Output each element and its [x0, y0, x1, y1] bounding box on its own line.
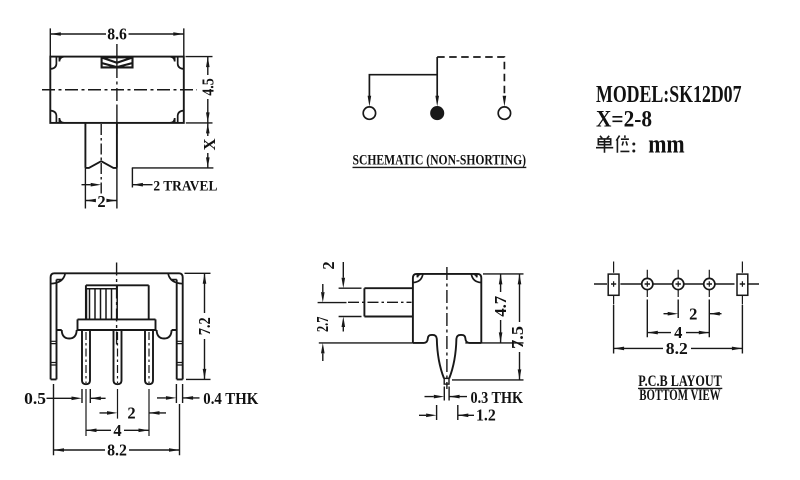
svg-text:2: 2 [319, 261, 338, 269]
svg-text:0.5: 0.5 [24, 389, 46, 408]
svg-text:8.6: 8.6 [107, 25, 127, 44]
svg-text:2: 2 [97, 192, 105, 211]
svg-text:BOTTOM VIEW: BOTTOM VIEW [639, 387, 720, 404]
svg-text:0.3 THK: 0.3 THK [471, 388, 524, 407]
svg-text:SCHEMATIC (NON-SHORTING): SCHEMATIC (NON-SHORTING) [353, 153, 527, 169]
svg-text:8.2: 8.2 [107, 441, 127, 460]
svg-text:8.2: 8.2 [666, 339, 688, 358]
svg-text:2: 2 [689, 304, 697, 323]
svg-text:4.7: 4.7 [491, 295, 510, 316]
svg-text:2.7: 2.7 [313, 316, 332, 332]
svg-text:4: 4 [113, 421, 121, 440]
svg-text:7.5: 7.5 [508, 326, 527, 349]
svg-text:2: 2 [127, 403, 135, 422]
svg-text:0.4 THK: 0.4 THK [203, 389, 259, 408]
svg-text:1.2: 1.2 [476, 406, 496, 425]
svg-text:mm: mm [648, 129, 685, 158]
svg-text:MODEL:SK12D07: MODEL:SK12D07 [596, 82, 742, 108]
svg-text:7.2: 7.2 [195, 317, 214, 335]
svg-text:X=2-8: X=2-8 [596, 107, 652, 132]
svg-text:4.5: 4.5 [199, 78, 218, 96]
svg-text:2 TRAVEL: 2 TRAVEL [153, 178, 217, 195]
svg-text:X: X [200, 138, 219, 150]
